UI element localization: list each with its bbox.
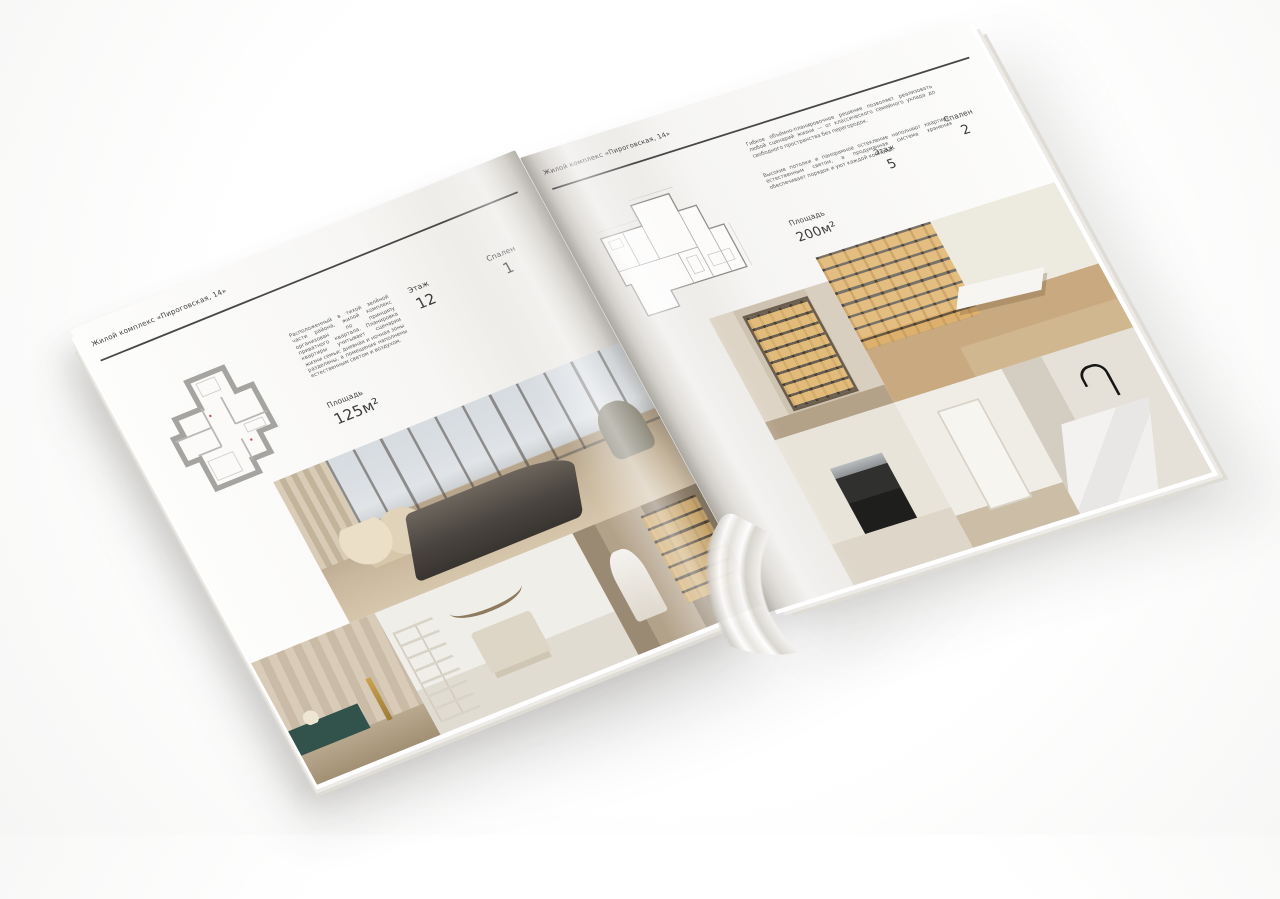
- right-page-header: Жилой комплекс «Пироговская, 14»: [542, 130, 672, 177]
- left-description: Расположенный в тихой зелёной части райо…: [288, 294, 412, 380]
- white-door: [937, 398, 1033, 510]
- black-faucet: [1076, 361, 1112, 387]
- right-spec-bedrooms: Спален 2: [937, 106, 990, 143]
- white-desk: [956, 267, 1044, 310]
- lit-display-cabinet: [743, 296, 859, 411]
- brochure-mockup: Жилой комплекс «Пироговская, 14» Располо…: [0, 0, 1280, 835]
- bed-with-bench: [470, 610, 551, 674]
- right-spec-area: Площадь 200м²: [788, 208, 840, 245]
- left-spec-bedrooms: Спален 1: [479, 242, 533, 284]
- brass-lamp: [365, 677, 392, 720]
- left-spec-area: Площадь 125м²: [326, 385, 384, 429]
- left-spec-floor: Этаж 12: [399, 276, 449, 317]
- right-header-rule: [552, 57, 970, 190]
